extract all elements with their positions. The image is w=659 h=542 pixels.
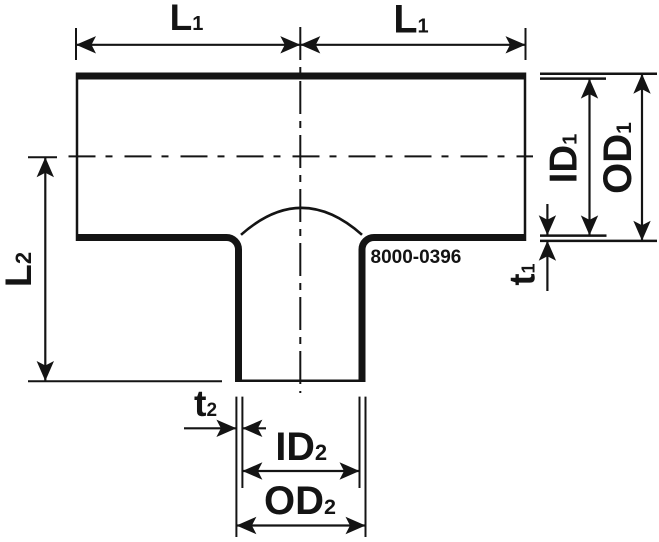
svg-text:8000-0396: 8000-0396	[371, 247, 462, 268]
